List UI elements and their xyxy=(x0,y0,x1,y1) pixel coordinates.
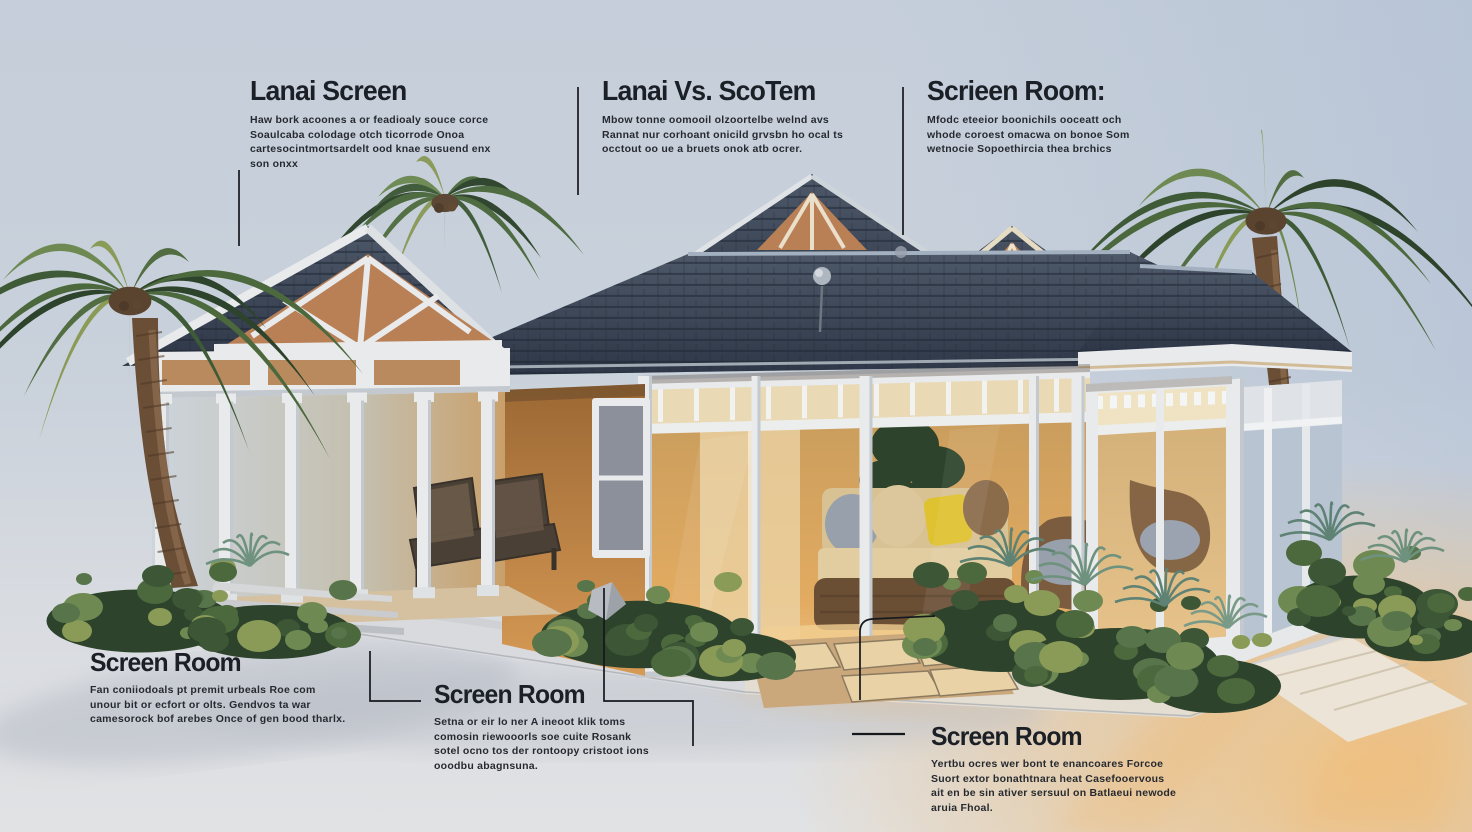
callout-heading: Screen Room xyxy=(90,648,404,676)
callout-body: Setna or eir lo ner A ineoot klik tomsco… xyxy=(434,715,764,773)
callout-heading: Scrieen Room: xyxy=(927,76,1241,106)
callout-body: Fan coniiodoals pt premit urbeals Roe co… xyxy=(90,683,420,727)
callout-bottom-middle: Screen Room Setna or eir lo ner A ineoot… xyxy=(434,680,764,773)
callout-body: Haw bork acoones a or feadioaly souce co… xyxy=(250,113,580,171)
callout-bottom-right: Screen Room Yertbu ocres wer bont te ena… xyxy=(931,722,1261,815)
label-body-line: aruia Fhoal. xyxy=(931,801,1261,816)
callout-top-middle: Lanai Vs. ScoTem Mbow tonne oomooil olzo… xyxy=(602,76,932,157)
label-body-line: son onxx xyxy=(250,157,580,172)
callout-heading: Lanai Vs. ScoTem xyxy=(602,76,916,106)
lanai-infographic: Lanai Screen Haw bork acoones a or feadi… xyxy=(0,0,1472,832)
label-body-line: unour bit or ecfort or olts. Gendvos ta … xyxy=(90,698,420,713)
label-body-line: Fan coniiodoals pt premit urbeals Roe co… xyxy=(90,683,420,698)
label-body-line: whode coroest omacwa on bonoe Som xyxy=(927,128,1257,143)
callout-heading: Screen Room xyxy=(931,722,1245,750)
callout-bottom-left: Screen Room Fan coniiodoals pt premit ur… xyxy=(90,648,420,727)
label-body-line: ooodbu abagnsuna. xyxy=(434,759,764,774)
label-body-line: Suort extor bonathtnara heat Casefooervo… xyxy=(931,772,1261,787)
label-body-line: occtout oo ue a bruets onok atb ocrer. xyxy=(602,142,932,157)
callout-heading: Screen Room xyxy=(434,680,748,708)
label-body-line: Haw bork acoones a or feadioaly souce co… xyxy=(250,113,580,128)
label-body-line: Rannat nur corhoant onicild grvsbn ho oc… xyxy=(602,128,932,143)
label-body-line: wetnocie Sopoethircia thea brchics xyxy=(927,142,1257,157)
label-body-line: Mbow tonne oomooil olzoortelbe welnd avs xyxy=(602,113,932,128)
label-body-line: camesorock bof arebes Once of gen bood t… xyxy=(90,712,420,727)
label-body-line: ait en be sin ativer sersuul on Batlaeui… xyxy=(931,786,1261,801)
label-body-line: Setna or eir lo ner A ineoot klik toms xyxy=(434,715,764,730)
label-body-line: Yertbu ocres wer bont te enancoares Forc… xyxy=(931,757,1261,772)
callout-body: Mbow tonne oomooil olzoortelbe welnd avs… xyxy=(602,113,932,157)
callout-body: Mfodc eteeior boonichils ooceatt ochwhod… xyxy=(927,113,1257,157)
label-body-line: cartesocintmortsardelt ood knae susuend … xyxy=(250,142,580,157)
label-body-line: sotel ocno tos der rontoopy cristoot ion… xyxy=(434,744,764,759)
callout-top-left: Lanai Screen Haw bork acoones a or feadi… xyxy=(250,76,580,171)
callout-top-right: Scrieen Room: Mfodc eteeior boonichils o… xyxy=(927,76,1257,157)
label-body-line: comosin riewooorls soe cuite Rosank xyxy=(434,730,764,745)
callout-heading: Lanai Screen xyxy=(250,76,564,106)
callout-body: Yertbu ocres wer bont te enancoares Forc… xyxy=(931,757,1261,815)
label-body-line: Mfodc eteeior boonichils ooceatt och xyxy=(927,113,1257,128)
label-body-line: Soaulcaba colodage otch ticorrode Onoa xyxy=(250,128,580,143)
